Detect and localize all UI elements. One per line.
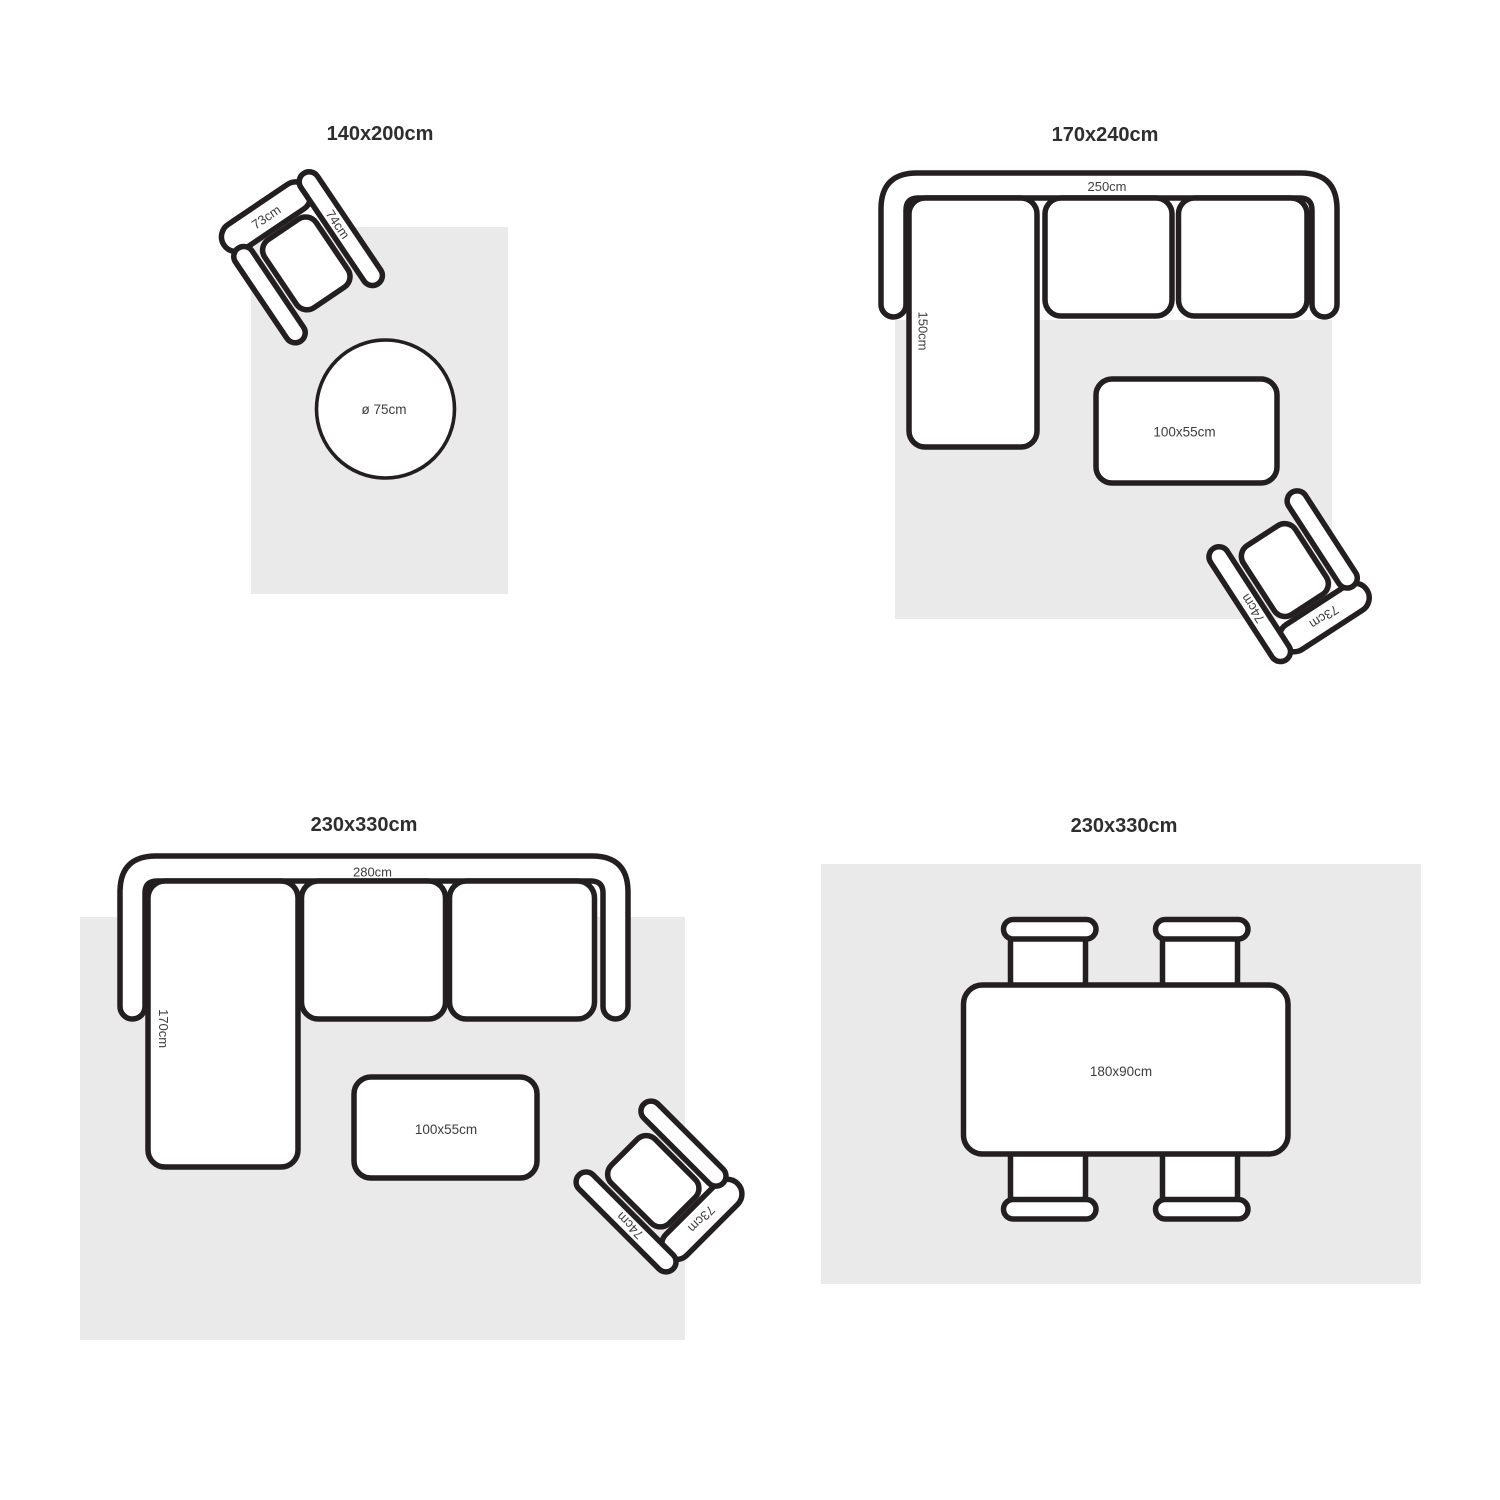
svg-text:280cm: 280cm xyxy=(353,865,392,880)
svg-text:170cm: 170cm xyxy=(156,1009,171,1048)
svg-text:230x330cm: 230x330cm xyxy=(311,814,418,836)
svg-text:140x200cm: 140x200cm xyxy=(327,123,434,145)
svg-text:100x55cm: 100x55cm xyxy=(415,1122,477,1137)
svg-text:250cm: 250cm xyxy=(1087,179,1126,194)
svg-text:150cm: 150cm xyxy=(916,311,931,350)
svg-text:170x240cm: 170x240cm xyxy=(1052,124,1159,146)
svg-text:180x90cm: 180x90cm xyxy=(1090,1064,1152,1079)
svg-text:230x330cm: 230x330cm xyxy=(1071,815,1178,837)
svg-text:ø 75cm: ø 75cm xyxy=(361,402,406,417)
svg-text:100x55cm: 100x55cm xyxy=(1153,425,1215,440)
